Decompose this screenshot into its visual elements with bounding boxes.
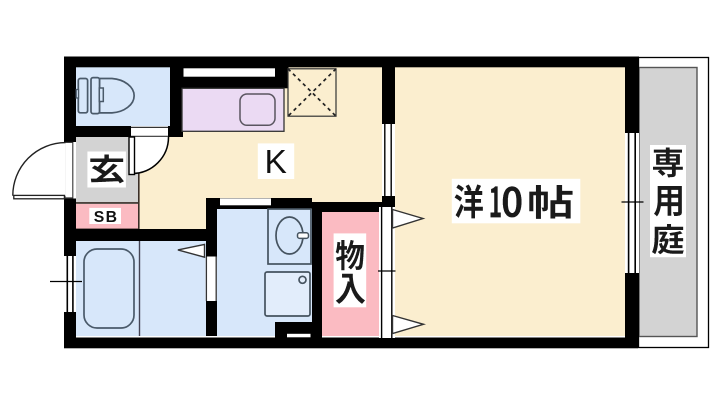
svg-text:K: K	[265, 144, 287, 181]
svg-text:SB: SB	[94, 209, 119, 226]
